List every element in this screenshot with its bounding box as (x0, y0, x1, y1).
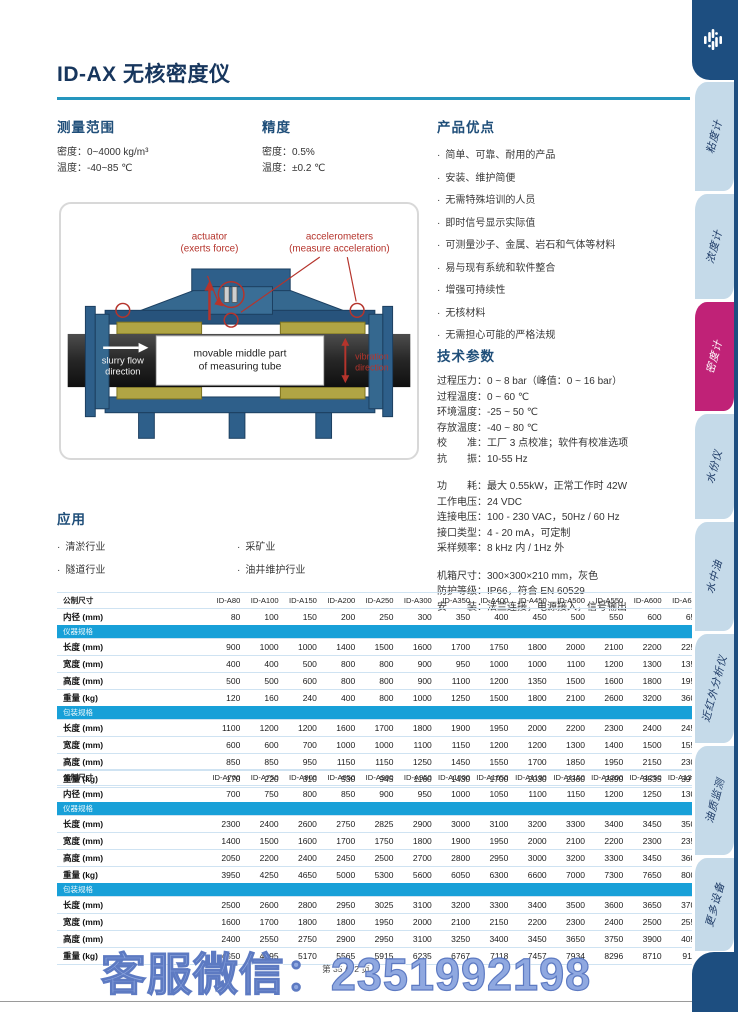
advantage-item: ·安装、维护简便 (437, 168, 693, 191)
table-cell: 150 (284, 609, 322, 626)
table-cell: 1150 (360, 754, 398, 771)
table-cell: 5300 (360, 867, 398, 884)
table-cell: 2600 (284, 816, 322, 833)
table-group-band: 包装规格 (57, 883, 705, 897)
spec-table: 公制尺寸ID-A80ID-A100ID-A150ID-A200ID-A250ID… (57, 592, 705, 788)
table-cell: 2900 (398, 816, 436, 833)
table-cell: 1400 (207, 833, 245, 850)
table-cell: 200 (322, 609, 360, 626)
table-cell: 2400 (590, 914, 628, 931)
advantage-item: ·可测量沙子、金属、岩石和气体等材料 (437, 235, 693, 258)
table-cell: 500 (207, 673, 245, 690)
table-cell: 2200 (590, 833, 628, 850)
table-cell: 2200 (513, 914, 551, 931)
table-cell: 600 (284, 673, 322, 690)
table-cell: 2600 (590, 690, 628, 707)
table-model-header: ID-A950 (398, 770, 436, 786)
table-cell: 100 (245, 609, 283, 626)
section-title: 精度 (262, 116, 422, 136)
table-cell: 850 (322, 786, 360, 803)
bullet-text: 油井维护行业 (245, 565, 305, 576)
table-cell: 120 (207, 690, 245, 707)
table-cell: 6300 (475, 867, 513, 884)
table-cell: 1000 (360, 737, 398, 754)
bullet-text: 隧道行业 (65, 565, 105, 576)
table-cell: 5600 (398, 867, 436, 884)
table-cell: 3300 (590, 850, 628, 867)
tech-param-line: 功 耗：最大 0.55kW，正常工作时 42W (437, 479, 699, 495)
bullet-text: 无需担心可能的严格法规 (445, 330, 555, 341)
table-head-label: 公制尺寸 (57, 593, 207, 609)
spec-line: 密度：0.5% (262, 145, 422, 161)
table-cell: 2100 (552, 833, 590, 850)
bullet-text: 即时信号显示实际值 (445, 218, 535, 229)
table-cell: 240 (284, 690, 322, 707)
table-row-label: 重量 (kg) (57, 690, 207, 707)
advantage-item: ·即时信号显示实际值 (437, 213, 693, 236)
table-model-header: ID-A500 (552, 593, 590, 609)
table-cell: 900 (398, 673, 436, 690)
table-cell: 2500 (207, 897, 245, 914)
table-cell: 1750 (475, 639, 513, 656)
table-model-header: ID-A600 (628, 593, 666, 609)
table-cell: 1500 (628, 737, 666, 754)
table-model-header: ID-A750 (245, 770, 283, 786)
table-cell: 500 (245, 673, 283, 690)
table-row: 重量 (kg)120160240400800100012501500180021… (57, 690, 705, 707)
spec-table-2: 公制尺寸ID-A700ID-A750ID-A800ID-A850ID-A900I… (57, 769, 705, 965)
advantage-item: ·无核材料 (437, 303, 693, 326)
table-model-header: ID-A800 (284, 770, 322, 786)
sidebar-tab-5[interactable]: 水中油 (695, 522, 734, 631)
table-cell: 300 (398, 609, 436, 626)
table-cell: 1100 (552, 656, 590, 673)
table-model-header: ID-A450 (513, 593, 551, 609)
sidebar-tab-3[interactable]: 密度计 (695, 302, 734, 411)
table-cell: 1900 (437, 833, 475, 850)
bullet-text: 增强可持续性 (445, 285, 505, 296)
table-cell: 3450 (628, 816, 666, 833)
spec-line: 密度：0~4000 kg/m³ (57, 145, 252, 161)
table-row: 长度 (mm)230024002600275028252900300031003… (57, 816, 705, 833)
table-cell: 2400 (284, 850, 322, 867)
table-cell: 1050 (475, 786, 513, 803)
table-cell: 3000 (437, 816, 475, 833)
table-cell: 2000 (513, 833, 551, 850)
table-row: 高度 (mm)205022002400245025002700280029503… (57, 850, 705, 867)
sidebar-tab-label: 密度计 (703, 337, 726, 374)
application-item: ·油井维护行业 (237, 560, 417, 583)
bullet-icon: · (237, 565, 240, 576)
table-cell: 1600 (322, 720, 360, 737)
application-item: ·隧道行业 (57, 560, 237, 583)
table-cell: 400 (475, 609, 513, 626)
sidebar-tab-7[interactable]: 油质监测 (695, 746, 734, 855)
table-cell: 800 (360, 690, 398, 707)
table-cell: 1000 (284, 639, 322, 656)
sidebar-tab-4[interactable]: 水份仪 (695, 414, 734, 519)
section-applications: 应用 ·清淤行业·隧道行业 ·采矿业·油井维护行业 (57, 508, 417, 582)
table-cell: 750 (245, 786, 283, 803)
table-cell: 950 (284, 754, 322, 771)
advantage-item: ·增强可持续性 (437, 280, 693, 303)
bullet-icon: · (437, 263, 440, 274)
table-cell: 2600 (245, 897, 283, 914)
table-cell: 400 (322, 690, 360, 707)
table-cell: 2700 (398, 850, 436, 867)
tech-param-line: 过程温度：0 ~ 60 ℃ (437, 390, 699, 406)
table-cell: 2450 (322, 850, 360, 867)
table-model-header: ID-A550 (590, 593, 628, 609)
table-cell: 1500 (245, 833, 283, 850)
bullet-text: 清淤行业 (65, 542, 105, 553)
section-advantages: 产品优点 ·简单、可靠、耐用的产品·安装、维护简便·无需特殊培训的人员·即时信号… (437, 116, 693, 348)
tech-param-line: 工作电压：24 VDC (437, 495, 699, 511)
table-cell: 1700 (513, 754, 551, 771)
table-cell: 600 (245, 737, 283, 754)
section-title: 产品优点 (437, 116, 693, 136)
table-cell: 1700 (245, 914, 283, 931)
table-row-label: 长度 (mm) (57, 639, 207, 656)
table-cell: 3900 (628, 931, 666, 948)
table-cell: 1350 (513, 673, 551, 690)
table-cell: 550 (590, 609, 628, 626)
table-cell: 3400 (513, 897, 551, 914)
title-divider (57, 97, 690, 100)
table-row: 高度 (mm)500500600800800900110012001350150… (57, 673, 705, 690)
table-model-header: ID-A1200 (590, 770, 628, 786)
table-cell: 1150 (322, 754, 360, 771)
table-cell: 1150 (552, 786, 590, 803)
table-cell: 3200 (552, 850, 590, 867)
table-cell: 850 (245, 754, 283, 771)
table-cell: 1700 (360, 720, 398, 737)
table-row-label: 长度 (mm) (57, 720, 207, 737)
spec-table: 公制尺寸ID-A700ID-A750ID-A800ID-A850ID-A900I… (57, 769, 705, 965)
table-cell: 1300 (628, 656, 666, 673)
tech-param-line: 校 准：工厂 3 点校准；软件有校准选项 (437, 436, 699, 452)
table-cell: 3100 (475, 816, 513, 833)
table-cell: 1200 (245, 720, 283, 737)
table-cell: 3200 (628, 690, 666, 707)
table-cell: 2400 (245, 816, 283, 833)
table-row-label: 高度 (mm) (57, 850, 207, 867)
table-cell: 3000 (513, 850, 551, 867)
sidebar-tab-2[interactable]: 浓度计 (695, 194, 734, 299)
table-cell: 250 (360, 609, 398, 626)
table-cell: 5000 (322, 867, 360, 884)
table-cell: 160 (245, 690, 283, 707)
application-col-2: ·采矿业·油井维护行业 (237, 537, 417, 582)
table-cell: 800 (322, 673, 360, 690)
bullet-icon: · (437, 240, 440, 251)
device-diagram: movable middle part of measuring tube sl… (59, 202, 419, 460)
sidebar-tab-8[interactable]: 更多设备 (695, 858, 734, 951)
table-cell: 1800 (398, 720, 436, 737)
table-cell: 700 (207, 786, 245, 803)
table-model-header: ID-A150 (284, 593, 322, 609)
table-cell: 2300 (207, 816, 245, 833)
spec-line: 温度：±0.2 ℃ (262, 161, 422, 177)
table-cell: 1250 (437, 690, 475, 707)
table-cell: 1100 (513, 786, 551, 803)
table-cell: 700 (284, 737, 322, 754)
table-row-label: 宽度 (mm) (57, 914, 207, 931)
table-row-label: 长度 (mm) (57, 897, 207, 914)
range-lines: 密度：0~4000 kg/m³温度：-40~85 ℃ (57, 145, 252, 176)
table-cell: 600 (628, 609, 666, 626)
table-cell: 1500 (475, 690, 513, 707)
sidebar-logo-block (692, 0, 734, 80)
table-cell: 1200 (590, 656, 628, 673)
tech-param-line: 连接电压：100 - 230 VAC，50Hz / 60 Hz (437, 510, 699, 526)
section-measurement-range: 测量范围 密度：0~4000 kg/m³温度：-40~85 ℃ (57, 116, 252, 176)
table-cell: 1000 (475, 656, 513, 673)
table-cell: 2300 (628, 833, 666, 850)
tech-param-line: 存放温度：-40 ~ 80 ℃ (437, 421, 699, 437)
table-cell: 350 (437, 609, 475, 626)
diagram-middle-label-line2: of measuring tube (199, 361, 282, 372)
table-cell: 1000 (513, 656, 551, 673)
table-cell: 4250 (245, 867, 283, 884)
table-cell: 3600 (590, 897, 628, 914)
datasheet-page: ID-AX 无核密度仪 测量范围 密度：0~4000 kg/m³温度：-40~8… (0, 0, 738, 1012)
table-row: 宽度 (mm)160017001800180019502000210021502… (57, 914, 705, 931)
table-cell: 2300 (590, 720, 628, 737)
table-cell: 7000 (552, 867, 590, 884)
table-cell: 1600 (284, 833, 322, 850)
table-cell: 2000 (513, 720, 551, 737)
table-cell: 2400 (628, 720, 666, 737)
table-cell: 1800 (284, 914, 322, 931)
sidebar-bottom-block (692, 952, 734, 1012)
table-model-header: ID-A300 (398, 593, 436, 609)
table-model-header: ID-A400 (475, 593, 513, 609)
table-cell: 2950 (475, 850, 513, 867)
bullet-text: 易与现有系统和软件整合 (445, 263, 555, 274)
diagram-actuator-label-line2: (exerts force) (181, 243, 239, 254)
table-cell: 3300 (475, 897, 513, 914)
table-cell: 1200 (513, 737, 551, 754)
table-row: 长度 (mm)250026002800295030253100320033003… (57, 897, 705, 914)
brand-logo-icon (701, 27, 725, 53)
table-inner-diameter-row: 内径 (mm)700750800850900950100010501100115… (57, 786, 705, 803)
table-cell: 2300 (552, 914, 590, 931)
bullet-icon: · (437, 330, 440, 341)
bullet-icon: · (437, 308, 440, 319)
table-cell: 2950 (322, 897, 360, 914)
bullet-text: 安装、维护简便 (445, 173, 515, 184)
table-cell: 1450 (437, 754, 475, 771)
tech-param-line: 接口类型：4 - 20 mA，可定制 (437, 526, 699, 542)
table-cell: 1800 (322, 914, 360, 931)
bullet-text: 可测量沙子、金属、岩石和气体等材料 (445, 240, 615, 251)
table-cell: 800 (360, 656, 398, 673)
table-cell: 1800 (513, 690, 551, 707)
table-model-header: ID-A1100 (513, 770, 551, 786)
table-cell: 80 (207, 609, 245, 626)
table-cell: 600 (207, 737, 245, 754)
tech-param-group: 过程压力：0 ~ 8 bar（峰值：0 ~ 16 bar）过程温度：0 ~ 60… (437, 374, 699, 467)
bullet-icon: · (437, 285, 440, 296)
table-cell: 900 (207, 639, 245, 656)
table-model-header: ID-A900 (360, 770, 398, 786)
section-title: 测量范围 (57, 116, 252, 136)
table-cell: 3025 (360, 897, 398, 914)
table-row: 长度 (mm)110012001200160017001800190019502… (57, 720, 705, 737)
bullet-icon: · (437, 150, 440, 161)
table-group-band: 仪器规格 (57, 625, 705, 639)
table-cell: 1400 (322, 639, 360, 656)
table-cell: 1250 (628, 786, 666, 803)
table-cell: 950 (437, 656, 475, 673)
table-cell: 1950 (475, 833, 513, 850)
tech-param-group: 功 耗：最大 0.55kW，正常工作时 42W工作电压：24 VDC连接电压：1… (437, 479, 699, 557)
table-cell: 1850 (552, 754, 590, 771)
section-precision: 精度 密度：0.5%温度：±0.2 ℃ (262, 116, 422, 176)
bullet-text: 简单、可靠、耐用的产品 (445, 150, 555, 161)
table-cell: 8710 (628, 948, 666, 965)
diagram-accelerometer-label-line1: accelerometers (306, 231, 373, 242)
table-group-band: 包装规格 (57, 706, 705, 720)
table-cell: 1700 (437, 639, 475, 656)
table-row-label: 宽度 (mm) (57, 737, 207, 754)
table-cell: 6050 (437, 867, 475, 884)
application-item: ·采矿业 (237, 537, 417, 560)
table-cell: 2150 (628, 754, 666, 771)
table-cell: 400 (207, 656, 245, 673)
sidebar-tab-label: 浓度计 (703, 227, 726, 264)
table-cell: 1950 (360, 914, 398, 931)
table-row: 宽度 (mm)140015001600170017501800190019502… (57, 833, 705, 850)
table-cell: 3750 (590, 931, 628, 948)
advantage-item: ·无需特殊培训的人员 (437, 190, 693, 213)
table-cell: 2100 (590, 639, 628, 656)
table-cell: 1000 (398, 690, 436, 707)
table-cell: 7300 (590, 867, 628, 884)
precision-lines: 密度：0.5%温度：±0.2 ℃ (262, 145, 422, 176)
advantage-list: ·简单、可靠、耐用的产品·安装、维护简便·无需特殊培训的人员·即时信号显示实际值… (437, 145, 693, 348)
table-cell: 1000 (322, 737, 360, 754)
bullet-icon: · (237, 542, 240, 553)
diagram-slurry-label-line1: slurry flow (102, 355, 144, 365)
table-cell: 1000 (437, 786, 475, 803)
table-model-header: ID-A80 (207, 593, 245, 609)
table-cell: 2150 (475, 914, 513, 931)
table-row-label: 高度 (mm) (57, 754, 207, 771)
table-cell: 850 (207, 754, 245, 771)
table-row-label: 宽度 (mm) (57, 833, 207, 850)
sidebar-tab-label: 水份仪 (703, 447, 726, 484)
table-inner-diameter-row: 内径 (mm)801001502002503003504004505005506… (57, 609, 705, 626)
table-cell: 1900 (437, 720, 475, 737)
table-group-band-label: 包装规格 (57, 883, 705, 897)
table-row: 宽度 (mm)600600700100010001100115012001200… (57, 737, 705, 754)
advantage-item: ·易与现有系统和软件整合 (437, 258, 693, 281)
sidebar-tab-label: 水中油 (703, 557, 726, 594)
table-model-header: ID-A700 (207, 770, 245, 786)
table-cell: 2750 (322, 816, 360, 833)
diagram-vibration-label-line2: direction (355, 362, 389, 372)
table-cell: 3450 (628, 850, 666, 867)
sidebar-tab-label: 粘度计 (703, 117, 726, 154)
table-row: 宽度 (mm)400400500800800900950100010001100… (57, 656, 705, 673)
bullet-text: 采矿业 (245, 542, 275, 553)
table-model-header: ID-A1050 (475, 770, 513, 786)
sidebar-tab-label: 油质监测 (701, 776, 727, 824)
table-header-row: 公制尺寸ID-A700ID-A750ID-A800ID-A850ID-A900I… (57, 770, 705, 786)
bullet-icon: · (57, 542, 60, 553)
table-row-label: 内径 (mm) (57, 609, 207, 626)
sidebar-tab-6[interactable]: 近红外分析仪 (695, 634, 734, 743)
table-cell: 1600 (590, 673, 628, 690)
table-cell: 2200 (628, 639, 666, 656)
bullet-icon: · (437, 218, 440, 229)
sidebar: 粘度计浓度计密度计水份仪水中油近红外分析仪油质监测更多设备 (692, 0, 738, 1012)
table-cell: 2200 (552, 720, 590, 737)
table-cell: 400 (245, 656, 283, 673)
tech-param-line: 机箱尺寸：300×300×210 mm，灰色 (437, 569, 699, 585)
table-cell: 2500 (628, 914, 666, 931)
section-tech-params: 技术参数 过程压力：0 ~ 8 bar（峰值：0 ~ 16 bar）过程温度：0… (437, 345, 699, 627)
bullet-text: 无核材料 (445, 308, 485, 319)
table-group-band-label: 包装规格 (57, 706, 705, 720)
table-cell: 800 (360, 673, 398, 690)
table-model-header: ID-A200 (322, 593, 360, 609)
diagram-middle-label-line1: movable middle part (193, 349, 286, 360)
spec-table-1: 公制尺寸ID-A80ID-A100ID-A150ID-A200ID-A250ID… (57, 592, 705, 788)
table-cell: 1000 (245, 639, 283, 656)
table-cell: 1200 (590, 786, 628, 803)
table-row: 重量 (kg)395042504650500053005600605063006… (57, 867, 705, 884)
table-model-header: ID-A1150 (552, 770, 590, 786)
table-cell: 2200 (245, 850, 283, 867)
table-cell: 1950 (590, 754, 628, 771)
table-cell: 2000 (398, 914, 436, 931)
table-cell: 900 (360, 786, 398, 803)
tech-param-line: 采样频率：8 kHz 内 / 1Hz 外 (437, 541, 699, 557)
table-cell: 1550 (475, 754, 513, 771)
table-cell: 500 (552, 609, 590, 626)
table-model-header: ID-A100 (245, 593, 283, 609)
table-cell: 1300 (552, 737, 590, 754)
sidebar-tab-1[interactable]: 粘度计 (695, 82, 734, 191)
table-cell: 1500 (360, 639, 398, 656)
diagram-accelerometer-label-line2: (measure acceleration) (289, 243, 390, 254)
diagram-vibration-label-line1: vibration (355, 352, 389, 362)
table-cell: 1150 (437, 737, 475, 754)
table-cell: 1200 (475, 673, 513, 690)
table-model-header: ID-A350 (437, 593, 475, 609)
table-cell: 3650 (628, 897, 666, 914)
table-cell: 1800 (398, 833, 436, 850)
table-cell: 1800 (513, 639, 551, 656)
table-cell: 2500 (360, 850, 398, 867)
tech-param-line: 环境温度：-25 ~ 50 ℃ (437, 405, 699, 421)
table-cell: 1100 (207, 720, 245, 737)
table-cell: 950 (398, 786, 436, 803)
table-cell: 1500 (552, 673, 590, 690)
table-model-header: ID-A250 (360, 593, 398, 609)
table-row-label: 高度 (mm) (57, 673, 207, 690)
table-cell: 1800 (628, 673, 666, 690)
table-cell: 800 (284, 786, 322, 803)
table-cell: 1400 (590, 737, 628, 754)
table-model-header: ID-A850 (322, 770, 360, 786)
table-cell: 1750 (360, 833, 398, 850)
section-title: 技术参数 (437, 345, 699, 365)
table-group-band: 仪器规格 (57, 802, 705, 816)
